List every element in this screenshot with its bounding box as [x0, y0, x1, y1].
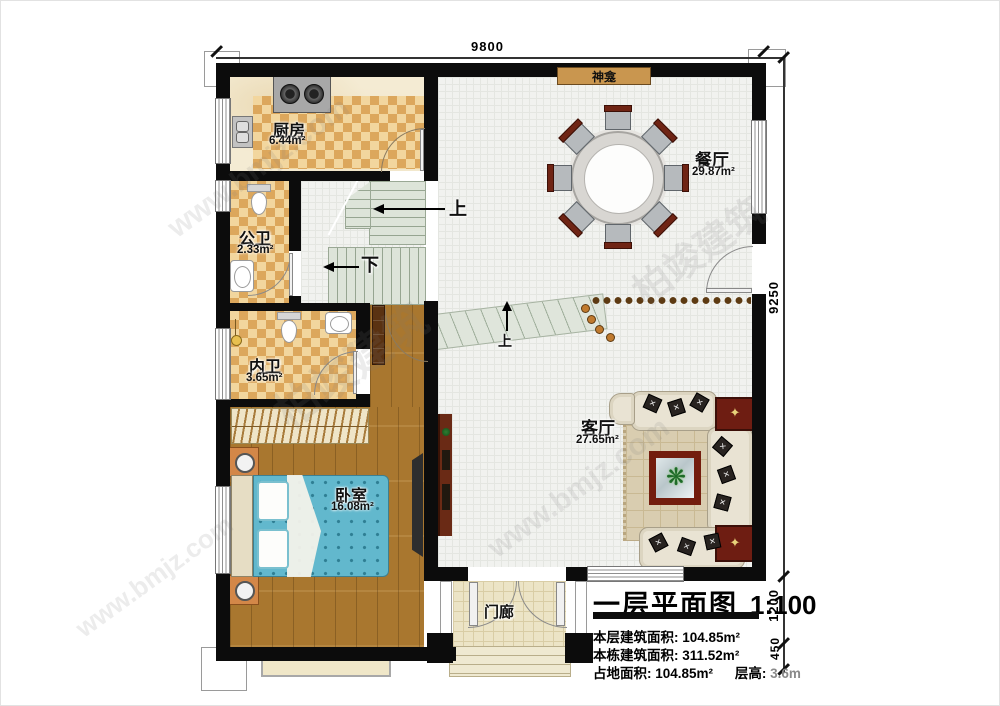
- lamp-icon: [231, 335, 242, 346]
- lamp-icon: [235, 581, 255, 601]
- stat-value: 311.52m²: [682, 648, 739, 663]
- kitchen-door-leaf: [420, 129, 424, 171]
- bed-headboard: [231, 475, 253, 577]
- arrow-head-icon: [373, 204, 384, 214]
- wall-bedroom-top: [230, 399, 356, 407]
- basin-bowl: [330, 316, 349, 332]
- toilet-tank-icon: [247, 184, 271, 192]
- stove-icon: [273, 75, 331, 113]
- shrine-cabinet: 神龛: [557, 67, 651, 85]
- wall-right: [752, 77, 766, 121]
- bead-curtain-tail: [582, 305, 589, 312]
- dining-table-top: [584, 144, 654, 214]
- public-bath-door-leaf: [289, 253, 293, 296]
- dimension-width: 9800: [471, 39, 504, 54]
- burner-icon: [304, 84, 324, 104]
- arrow-line: [384, 208, 445, 210]
- sofa-cushion: ✕: [704, 533, 722, 551]
- arrow-head-icon: [323, 262, 334, 272]
- nightstand: [229, 447, 259, 477]
- stat-building-area: 本栋建筑面积: 311.52m²: [593, 644, 739, 664]
- bead-curtain-row: [591, 296, 751, 305]
- plan-scale: 1:100: [750, 590, 817, 621]
- lamp-icon: [235, 453, 255, 473]
- dining-area: 29.87m²: [692, 166, 735, 178]
- plant-icon: [442, 428, 450, 436]
- stat-ground-area: 占地面积: 104.85m² 层高: 3.6m: [593, 662, 801, 682]
- porch-post: [427, 633, 453, 663]
- stat-value: 104.85m²: [655, 666, 713, 681]
- av-equipment: [442, 450, 450, 470]
- inner-bath-door-leaf: [353, 351, 357, 394]
- shrine-label: 神龛: [592, 70, 616, 84]
- dining-chair: [664, 165, 686, 191]
- stat-label: 本层建筑面积:: [593, 630, 679, 645]
- watermark: www.bmjz.com: [70, 509, 239, 644]
- stairs-up-arrow: [373, 203, 445, 214]
- dimension-line-top: [216, 57, 783, 59]
- wardrobe: [231, 408, 369, 444]
- porch-door-leaf: [469, 582, 478, 626]
- title-underline: [593, 612, 759, 619]
- nightstand: [229, 575, 259, 605]
- pillow: [257, 481, 289, 521]
- stat-value: 104.85m²: [682, 630, 740, 645]
- dimension-line-right: [783, 57, 785, 673]
- window-kitchen-left: [216, 99, 230, 163]
- entry-up-label: 上: [498, 331, 512, 351]
- window-bedroom-left: [216, 487, 230, 573]
- wall-bath-divider: [230, 303, 361, 311]
- wall-living-bottom: [566, 567, 588, 581]
- sink-basin: [236, 132, 249, 143]
- sink-basin: [236, 121, 249, 132]
- wall-public-bath-right: [289, 181, 301, 251]
- wall-living-bottom: [683, 567, 766, 581]
- wardrobe-rail: [232, 426, 368, 427]
- stairs-down-label: 下: [361, 251, 379, 277]
- stat-label: 本栋建筑面积:: [593, 648, 679, 663]
- porch-label: 门廊: [484, 601, 514, 622]
- wall-top: [216, 63, 766, 77]
- kitchen-area: 6.44m²: [269, 135, 305, 147]
- plant-icon: ❋: [661, 463, 691, 493]
- porch-post: [565, 633, 593, 663]
- bedroom-area: 16.08m²: [331, 501, 374, 513]
- window-public-bath-left: [216, 181, 230, 211]
- wall-right: [752, 294, 766, 581]
- stairs-down-arrow: [323, 261, 359, 272]
- kitchen-sink-icon: [232, 116, 253, 148]
- living-area: 27.65m²: [576, 434, 619, 446]
- stat-value: 3.6m: [770, 666, 801, 681]
- stat-label: 层高:: [735, 666, 767, 681]
- wall-kitchen-bottom: [230, 171, 390, 181]
- stat-label: 占地面积:: [593, 666, 652, 681]
- wall-bedroom-bottom: [216, 647, 456, 661]
- wall-living-bottom: [438, 567, 468, 581]
- pillow: [257, 529, 289, 569]
- public-bath-area: 2.33m²: [237, 244, 273, 256]
- tv-screen: [412, 453, 423, 557]
- wall-kitchen-right: [424, 77, 438, 181]
- porch-door-leaf: [556, 582, 565, 626]
- entry-arrow-head-icon: [502, 301, 512, 311]
- wall-inner-bath-right: [356, 303, 370, 349]
- arrow-line: [334, 266, 359, 268]
- wash-basin-icon: [325, 312, 352, 334]
- dining-door-leaf: [706, 288, 752, 293]
- side-table: ✦: [715, 525, 755, 562]
- av-equipment: [442, 484, 450, 510]
- wall-inner-bath-right: [356, 394, 370, 407]
- dimension-height: 9250: [766, 281, 781, 314]
- dining-chair: [605, 108, 631, 130]
- window-dining-right: [752, 121, 766, 213]
- inner-bath-area: 3.65m²: [246, 372, 282, 384]
- stat-floor-area: 本层建筑面积: 104.85m²: [593, 626, 740, 646]
- porch-steps: [449, 646, 571, 677]
- tv-cabinet: [438, 414, 452, 536]
- toilet-tank-icon: [277, 312, 301, 320]
- stairs-up-label: 上: [449, 195, 467, 221]
- bedroom-door-leaf: [372, 305, 385, 365]
- dining-chair: [605, 224, 631, 246]
- window-living-bottom: [588, 567, 683, 581]
- wall-right: [752, 213, 766, 244]
- side-table: ✦: [715, 397, 755, 431]
- window-inner-bath-left: [216, 329, 230, 399]
- burner-icon: [280, 84, 300, 104]
- wall-public-bath-right: [289, 296, 301, 303]
- floor-plan-canvas: 上 下 上: [0, 0, 1000, 706]
- dining-chair: [550, 165, 572, 191]
